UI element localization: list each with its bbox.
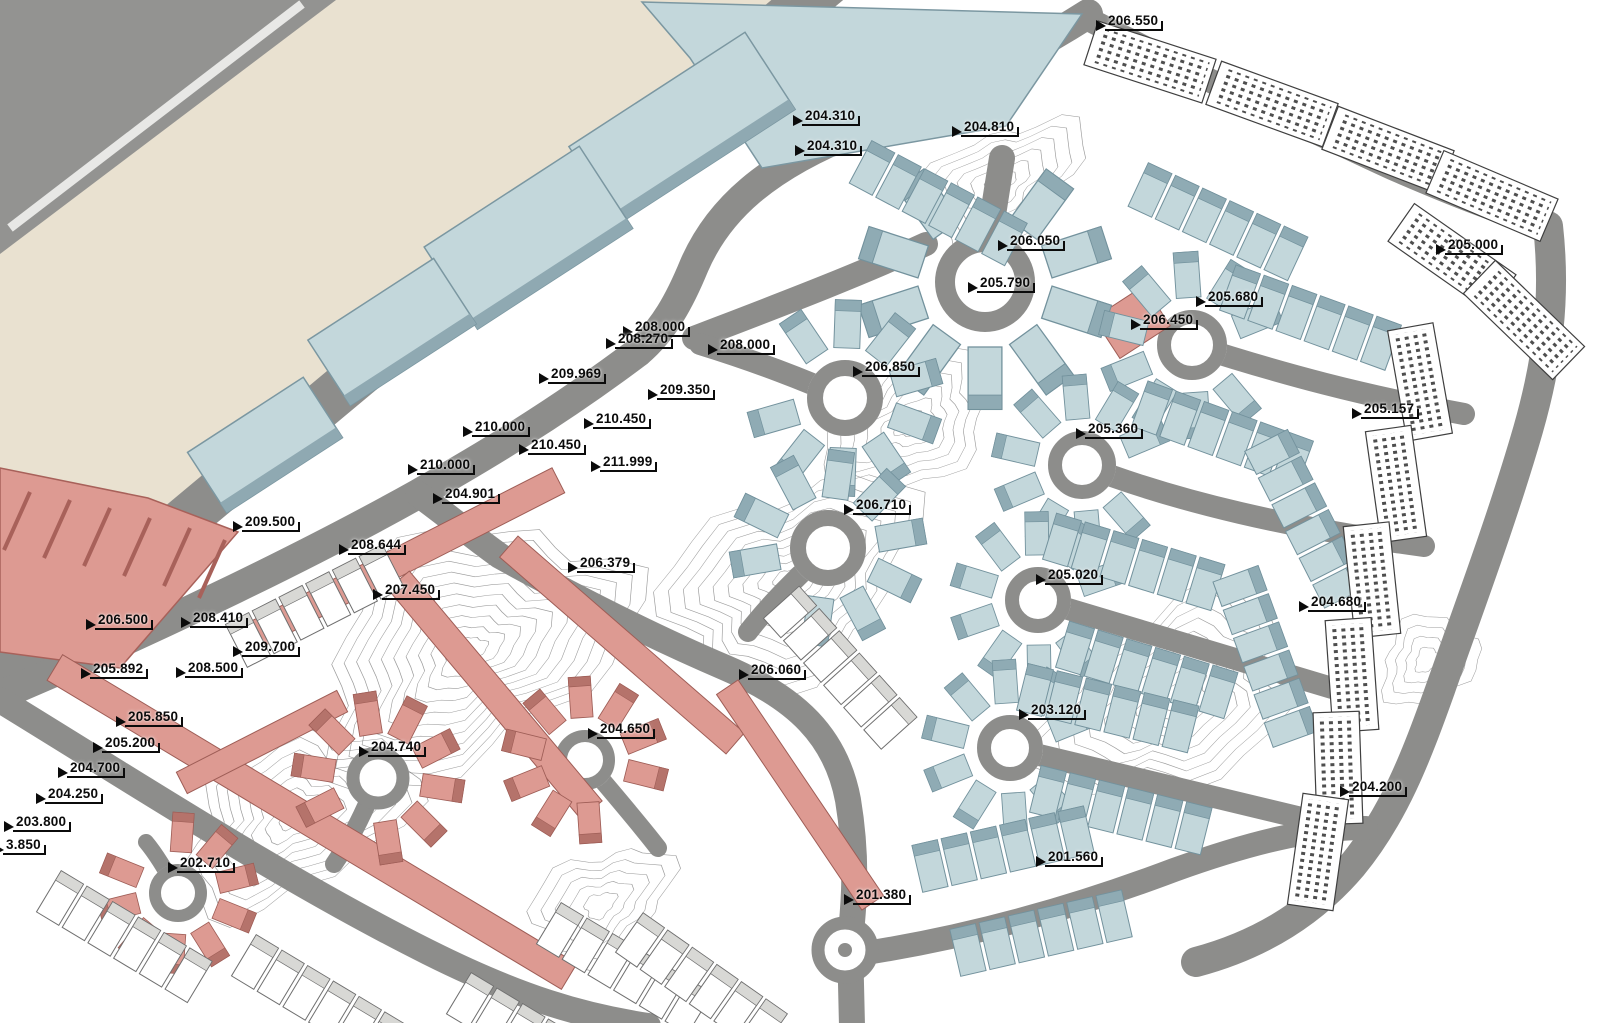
site-plan-rendering: [0, 0, 1600, 1023]
site-plan-canvas: 206.550204.310204.310204.810206.050205.7…: [0, 0, 1600, 1023]
